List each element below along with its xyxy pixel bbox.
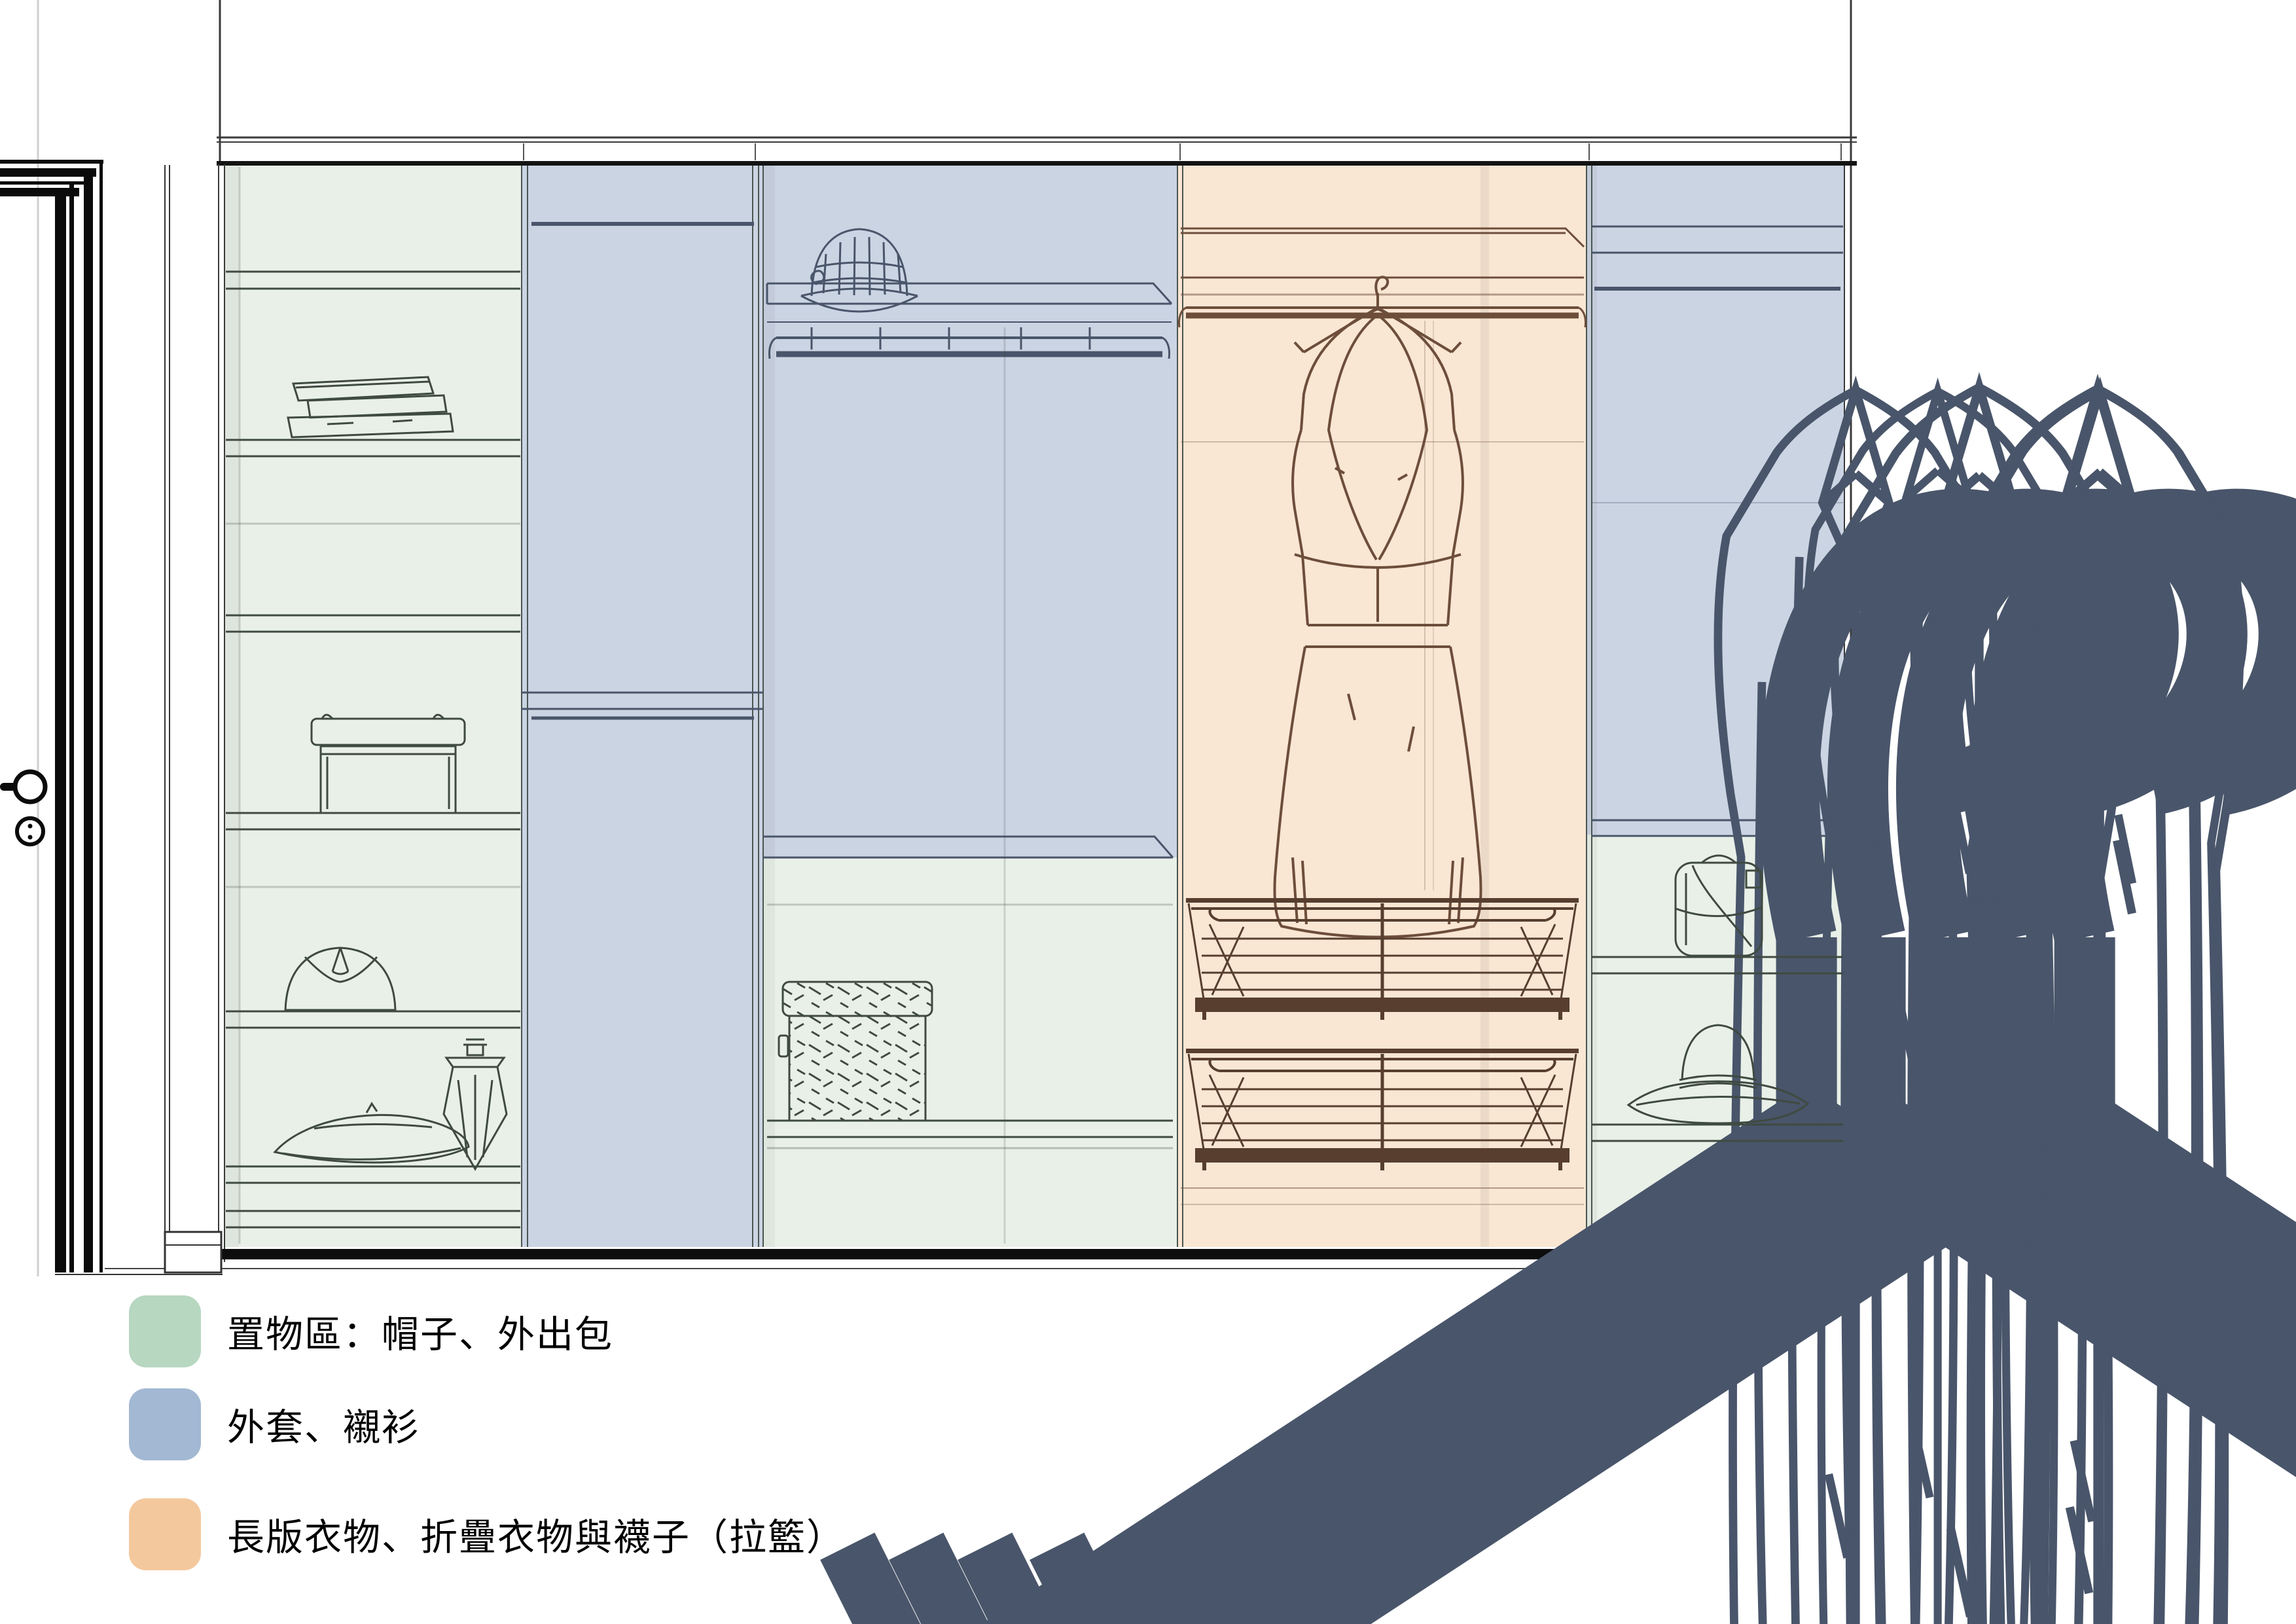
wardrobe-drawing [0,0,2296,1624]
door-frame [0,160,103,1272]
legend-item-outerwear: 外套、襯衫 [129,1388,420,1461]
legend-label-outerwear: 外套、襯衫 [227,1398,420,1451]
legend-label-storage: 置物區：帽子、外出包 [227,1305,613,1358]
zone-storage-left [224,166,522,1247]
legend-swatch-long-clothes [129,1498,201,1570]
woven-box [779,982,932,1121]
keyhole-icon [17,818,43,844]
zone-overlays [224,166,1844,1247]
legend-swatch-outerwear [129,1388,201,1460]
legend-item-storage: 置物區：帽子、外出包 [129,1295,613,1368]
legend-item-long-clothes: 長版衣物、折疊衣物與襪子（拉籃） [129,1498,845,1571]
legend-label-long-clothes: 長版衣物、折疊衣物與襪子（拉籃） [227,1507,845,1561]
zone-outerwear-left [522,166,763,1247]
wardrobe-elevation-diagram: 置物區：帽子、外出包 外套、襯衫 長版衣物、折疊衣物與襪子（拉籃） [0,0,2296,1624]
door [0,0,223,1276]
legend-swatch-storage [129,1295,201,1367]
